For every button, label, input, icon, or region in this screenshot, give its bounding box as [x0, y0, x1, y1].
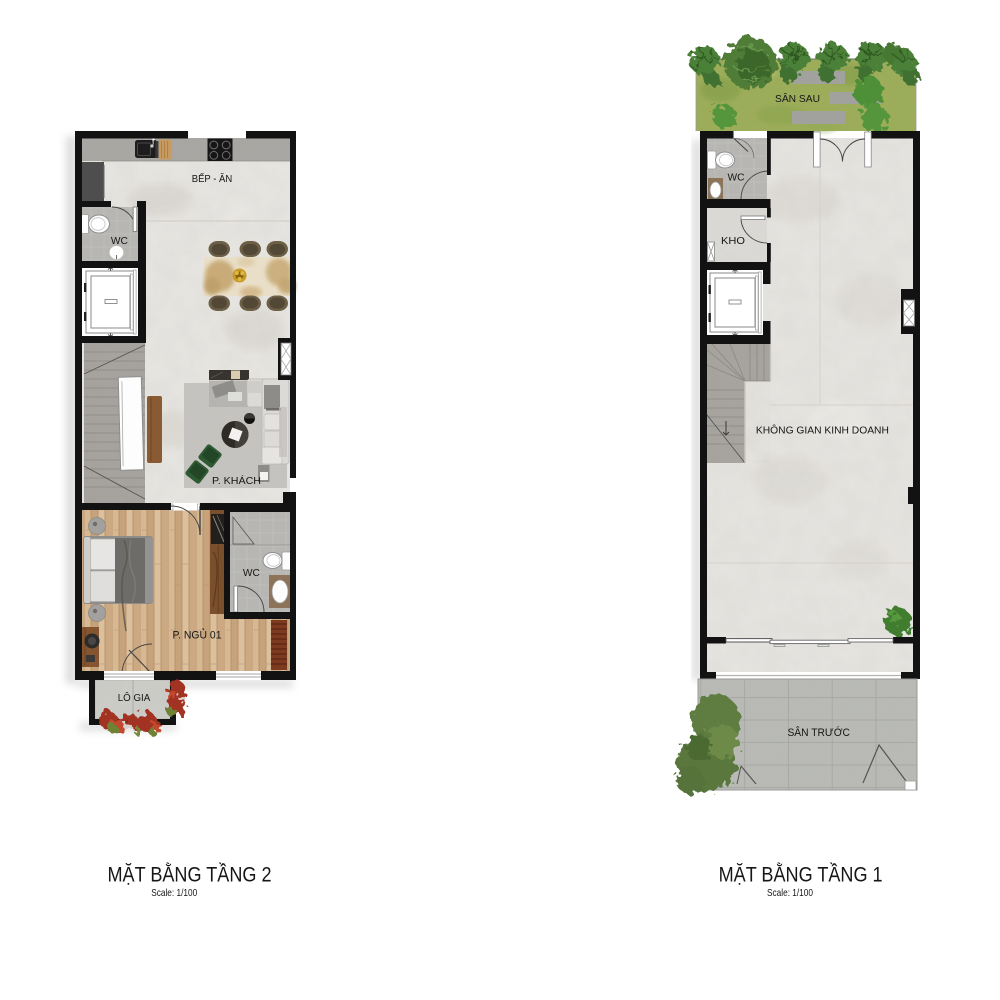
- svg-text:LÔ GIA: LÔ GIA: [118, 691, 151, 704]
- svg-text:SÂN SAU: SÂN SAU: [775, 92, 820, 105]
- svg-text:WC: WC: [243, 567, 260, 579]
- svg-text:P. NGỦ 01: P. NGỦ 01: [173, 629, 222, 642]
- svg-text:WC: WC: [111, 235, 128, 247]
- svg-text:SÂN TRƯỚC: SÂN TRƯỚC: [787, 726, 850, 739]
- svg-text:KHÔNG GIAN KINH DOANH: KHÔNG GIAN KINH DOANH: [756, 424, 889, 437]
- svg-text:Scale: 1/100: Scale: 1/100: [151, 887, 197, 899]
- svg-text:WC: WC: [728, 172, 745, 184]
- svg-text:BẾP - ĂN: BẾP - ĂN: [192, 172, 233, 185]
- svg-text:MẶT BẰNG TẦNG 1: MẶT BẰNG TẦNG 1: [719, 863, 883, 887]
- svg-text:P. KHÁCH: P. KHÁCH: [212, 474, 261, 487]
- svg-text:KHO: KHO: [721, 235, 745, 247]
- svg-text:Scale: 1/100: Scale: 1/100: [767, 887, 813, 899]
- svg-text:MẶT BẰNG TẦNG 2: MẶT BẰNG TẦNG 2: [108, 863, 272, 887]
